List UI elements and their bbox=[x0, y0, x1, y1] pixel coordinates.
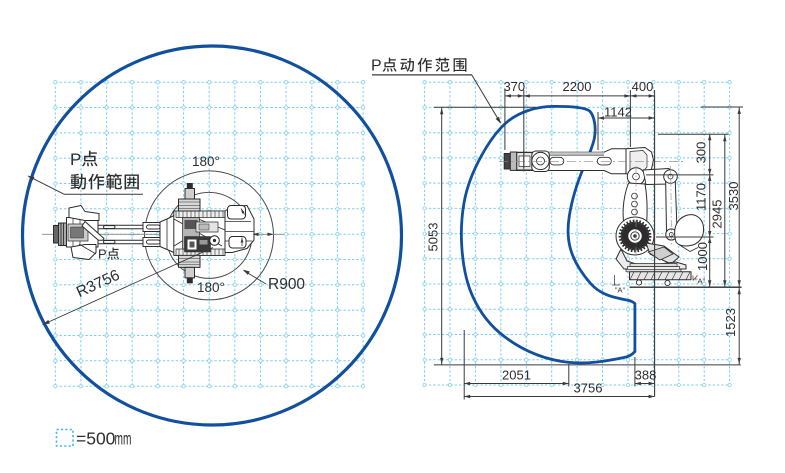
svg-text:400: 400 bbox=[632, 79, 654, 94]
svg-text:P: P bbox=[98, 247, 107, 262]
svg-text:=500: =500 bbox=[76, 429, 116, 449]
svg-text:2945: 2945 bbox=[710, 200, 725, 229]
svg-text:370: 370 bbox=[503, 79, 525, 94]
svg-text:1000: 1000 bbox=[695, 242, 710, 271]
svg-text:1170: 1170 bbox=[694, 183, 709, 211]
svg-text:5053: 5053 bbox=[426, 223, 441, 252]
svg-text:mm: mm bbox=[115, 430, 132, 450]
svg-text:2200: 2200 bbox=[563, 79, 592, 94]
svg-text:300: 300 bbox=[694, 142, 709, 164]
svg-text:180°: 180° bbox=[192, 154, 220, 169]
svg-text:3756: 3756 bbox=[574, 381, 603, 396]
svg-text:180°: 180° bbox=[197, 280, 225, 295]
svg-text:R900: R900 bbox=[268, 276, 305, 293]
svg-text:P: P bbox=[70, 150, 81, 169]
svg-text:3530: 3530 bbox=[726, 182, 741, 211]
svg-text:2051: 2051 bbox=[502, 368, 531, 383]
svg-text:1523: 1523 bbox=[723, 308, 738, 337]
svg-text:1142: 1142 bbox=[604, 105, 632, 120]
svg-text:P: P bbox=[371, 58, 382, 75]
svg-text:”A”: ”A” bbox=[615, 286, 626, 295]
svg-text:388: 388 bbox=[635, 368, 657, 383]
svg-text:”A”: ”A” bbox=[695, 277, 706, 286]
